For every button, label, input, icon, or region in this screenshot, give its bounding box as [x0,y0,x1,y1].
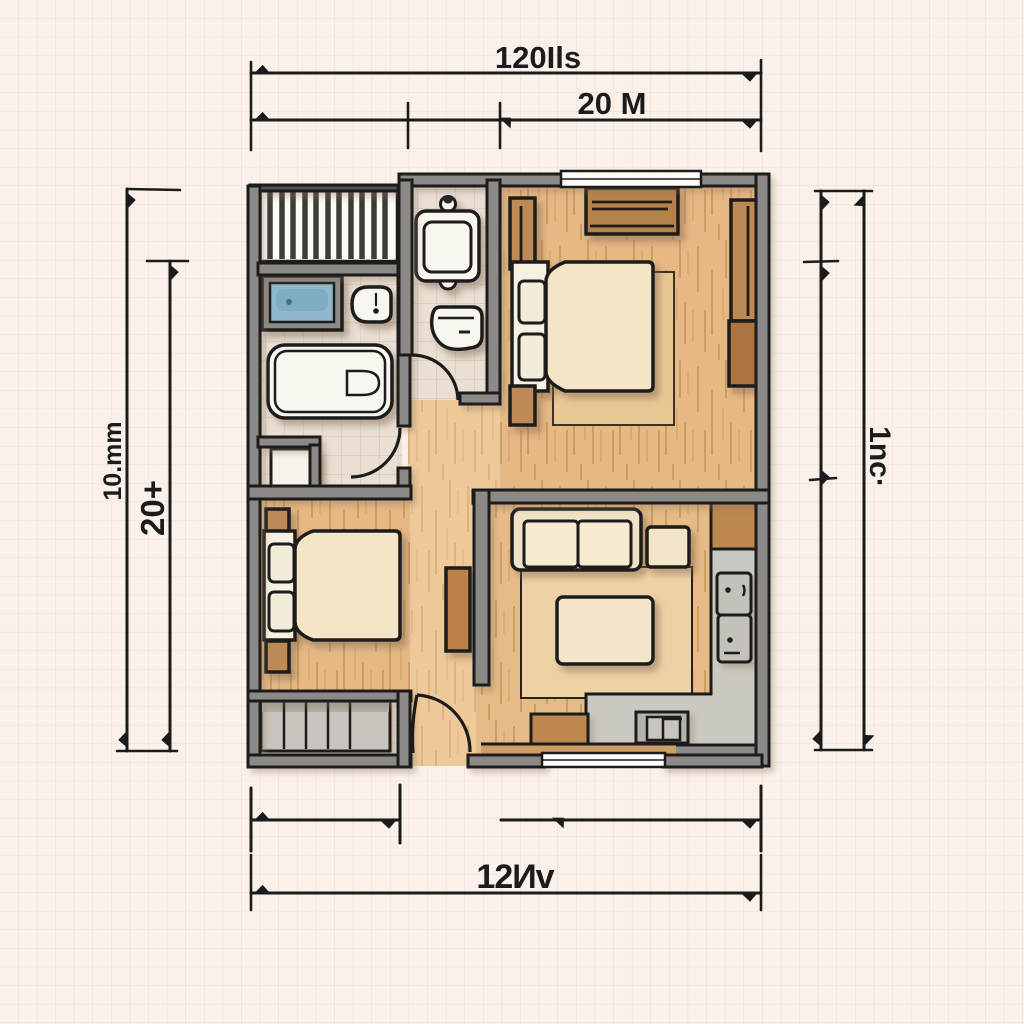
svg-text:20 M: 20 M [578,86,647,121]
svg-text:120Ils: 120Ils [495,40,581,75]
svg-text:12Иv: 12Иv [476,858,554,896]
svg-text:1nc·: 1nc· [863,426,896,488]
svg-text:20+: 20+ [134,480,171,536]
svg-text:10.mm: 10.mm [99,421,127,500]
